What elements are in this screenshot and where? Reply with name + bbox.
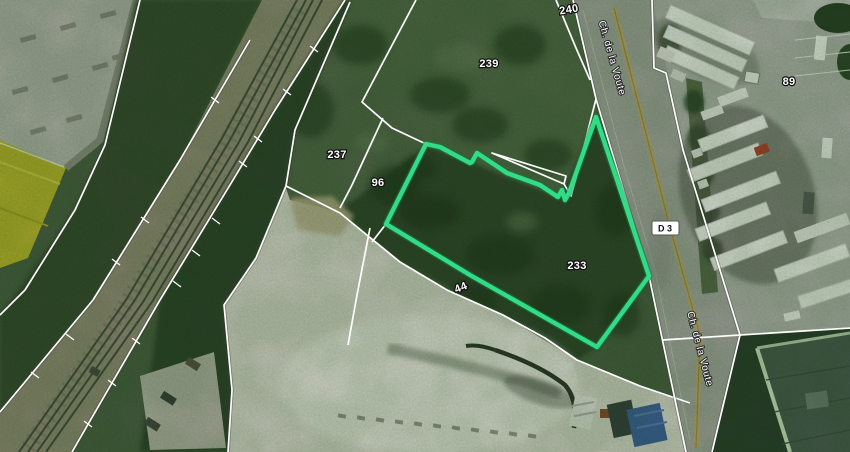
parcel-label-89: 89 [783,76,796,88]
satellite-layer [0,0,850,452]
road-badge-d3: D 3 [652,221,679,235]
parcel-label-96: 96 [372,177,385,189]
map-canvas: 240 239 237 96 233 44 89 Ch. de la Voute… [0,0,850,452]
map-viewport[interactable]: 240 239 237 96 233 44 89 Ch. de la Voute… [0,0,850,452]
parcel-label-233: 233 [567,260,586,272]
road-badge-text: D 3 [658,224,672,234]
parcel-label-237: 237 [327,149,346,161]
parcel-label-239: 239 [479,58,498,70]
